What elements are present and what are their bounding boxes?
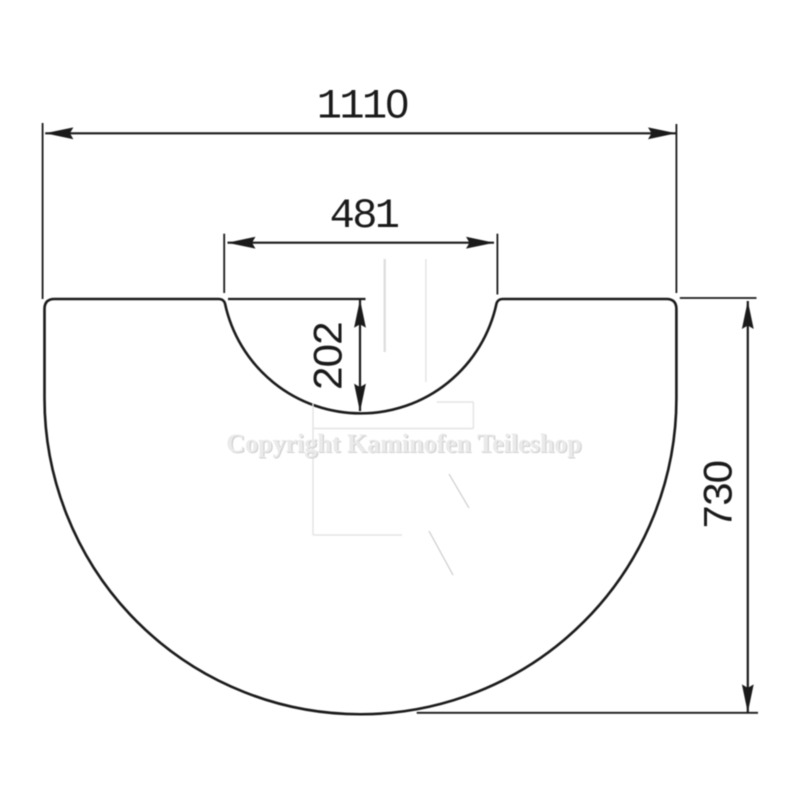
svg-text:481: 481: [330, 192, 399, 240]
svg-text:Copyright Kaminofen Teileshop: Copyright Kaminofen Teileshop: [226, 429, 581, 458]
